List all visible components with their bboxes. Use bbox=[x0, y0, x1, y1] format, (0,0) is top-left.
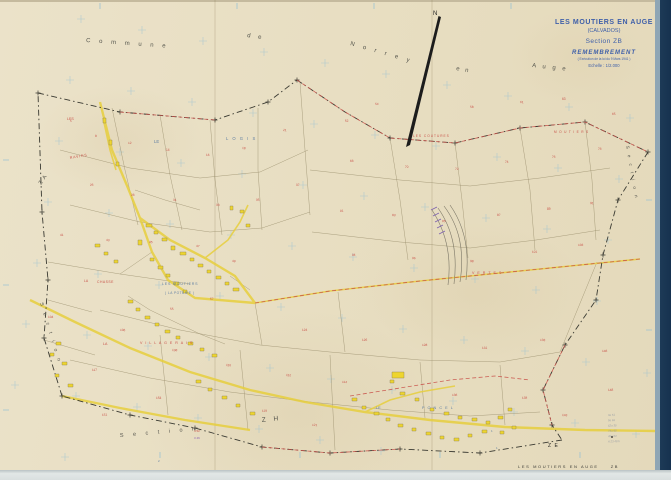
parcel-number: 31 bbox=[173, 198, 177, 202]
parcel-number: 58 bbox=[470, 105, 474, 109]
parcel-number: 35 bbox=[256, 198, 260, 202]
map-label: ( LA POTERIE ) bbox=[165, 291, 195, 295]
parcel-number: 138 bbox=[522, 396, 528, 400]
parcel-number: 112 bbox=[286, 373, 292, 377]
map-label: 2 bbox=[158, 459, 160, 463]
parcel-number: 43 bbox=[106, 238, 110, 242]
parcel-number: 68 bbox=[350, 159, 354, 163]
title-commune: LES MOUTIERS EN AUGE bbox=[545, 19, 663, 26]
title-departement: (CALVADOS) bbox=[545, 29, 663, 35]
parcel-number: 151 bbox=[102, 413, 108, 417]
map-label: C o m m u n e bbox=[86, 38, 169, 50]
title-remembrement: REMEMBREMENT bbox=[545, 50, 663, 56]
parcel-number: 21 bbox=[283, 128, 287, 132]
survey-dot bbox=[611, 436, 613, 438]
title-section: Section ZB bbox=[545, 39, 663, 46]
north-arrow bbox=[406, 16, 441, 147]
parcel-number: 47 bbox=[196, 244, 200, 248]
sheet-footer: LES MOUTIERS EN AUGEZB bbox=[518, 464, 631, 469]
map-label: LES MOUTIERS bbox=[162, 282, 198, 286]
parcel-number: 37 bbox=[296, 183, 300, 187]
footer-section: ZB bbox=[611, 464, 619, 469]
map-label: RAVINS bbox=[69, 153, 87, 160]
parcel-number: 128 bbox=[422, 343, 428, 347]
parcel-number: 52 bbox=[345, 119, 349, 123]
parcel-number: 74 bbox=[505, 160, 509, 164]
map-label: LE bbox=[376, 406, 381, 410]
parcel-number: 54 bbox=[375, 102, 379, 106]
parcel-number: 26 bbox=[90, 183, 94, 187]
parcel-number: 96 bbox=[412, 256, 416, 260]
map-label: Z A bbox=[38, 173, 49, 186]
map-label: e n bbox=[456, 66, 471, 74]
parcel-number: 33 bbox=[216, 203, 220, 207]
parcel-number: 124 bbox=[302, 328, 308, 332]
parcel-number: 45 bbox=[149, 240, 153, 244]
parcel-number: 131 bbox=[482, 346, 488, 350]
map-label: 9a 65 bbox=[608, 418, 616, 422]
parcel-number: 133 bbox=[540, 338, 546, 342]
parcel-number: 65 bbox=[612, 112, 616, 116]
parcel-number: 119 bbox=[262, 409, 268, 413]
parcel-number: 63 bbox=[562, 97, 566, 101]
parcel-number: 87 bbox=[497, 213, 501, 217]
parcel-number: 70 bbox=[405, 165, 409, 169]
parcel-number: 57 bbox=[210, 297, 214, 301]
parcel-number: 55 bbox=[170, 307, 174, 311]
parcel-number: 114 bbox=[342, 380, 347, 384]
map-label: L O G I S bbox=[226, 136, 257, 141]
parcel-number: 14 bbox=[166, 148, 170, 152]
place-labels: NC o m m u n ed eN o r r e ye nA u g eS … bbox=[38, 11, 640, 463]
parcel-number: 89 bbox=[547, 207, 551, 211]
parcel-number: 110 bbox=[226, 363, 232, 367]
map-sheet-scan: 5812141618212628313335374143454749525458… bbox=[0, 0, 671, 480]
map-label: P O N C E L bbox=[422, 406, 454, 410]
parcel-number: 41 bbox=[60, 233, 64, 237]
cadastral-map-canvas: 5812141618212628313335374143454749525458… bbox=[0, 0, 671, 480]
map-label: A 23 48 b bbox=[607, 439, 620, 443]
map-label: 3a 51 bbox=[608, 413, 616, 417]
parcel-number: 81 bbox=[340, 209, 344, 213]
map-label: LE bbox=[154, 139, 159, 144]
map-label: LES COUTURES bbox=[413, 134, 450, 138]
map-label: 74a 90 bbox=[608, 429, 617, 433]
map-label: V I L L A G E R A I S bbox=[140, 341, 193, 345]
parcel-number: 146 bbox=[602, 349, 608, 353]
parcel-numbers: 5812141618212628313335374143454749525458… bbox=[48, 97, 616, 427]
map-label: CHASSE bbox=[97, 280, 114, 284]
footer-commune: LES MOUTIERS EN AUGE bbox=[518, 464, 599, 469]
parcel-number: 76 bbox=[552, 155, 556, 159]
map-label: d e bbox=[247, 33, 265, 41]
map-label: LA bbox=[103, 342, 108, 346]
parcel-number: 126 bbox=[362, 338, 368, 342]
title-loi: ( Exécution de la loi du 9 Mars 1941 ) bbox=[545, 58, 663, 61]
parcel-number: 8 bbox=[95, 134, 97, 138]
parcel-number: 148 bbox=[608, 388, 614, 392]
margin-annotations: 3a 519a 6562a 3574a 9045a 04A 23 48 b bbox=[607, 413, 620, 444]
parcel-number: 121 bbox=[312, 423, 318, 427]
map-label: N o r r e y bbox=[349, 41, 413, 65]
map-label: 3 46 bbox=[194, 436, 200, 440]
parcel-number: 153 bbox=[156, 396, 162, 400]
parcel-number: 117 bbox=[92, 368, 97, 372]
map-label: 62a 35 bbox=[608, 423, 617, 427]
commune-boundary bbox=[38, 80, 648, 453]
parcel-number: 72 bbox=[455, 167, 459, 171]
parcel-number: 136 bbox=[452, 393, 458, 397]
map-label: S e c t i o n bbox=[120, 426, 200, 439]
parcel-number: 106 bbox=[120, 328, 126, 332]
map-label: LES bbox=[67, 117, 74, 121]
map-label: S e c t i o n bbox=[625, 145, 639, 200]
map-label: LA bbox=[84, 279, 89, 283]
parcel-number: 143 bbox=[562, 413, 568, 417]
parcel-number: 83 bbox=[392, 213, 396, 217]
map-label: Z H bbox=[261, 415, 281, 424]
parcel-number: 85 bbox=[442, 219, 446, 223]
parcel-number: 91 bbox=[590, 201, 594, 205]
map-label: N bbox=[433, 11, 437, 17]
title-echelle: Echelle : 1/2.000 bbox=[545, 64, 663, 68]
title-block: LES MOUTIERS EN AUGE (CALVADOS) Section … bbox=[545, 19, 663, 68]
parcel-number: 78 bbox=[598, 147, 602, 151]
parcel-number: 108 bbox=[172, 348, 178, 352]
map-label: M O U T I E R S bbox=[554, 130, 589, 134]
map-label: V E R T E S bbox=[472, 271, 502, 275]
parcel-number: 101 bbox=[532, 250, 538, 254]
map-label: Z E bbox=[548, 443, 559, 449]
parcel-number: 61 bbox=[520, 100, 524, 104]
parcel-number: 18 bbox=[242, 146, 246, 150]
parcel-number: 98 bbox=[470, 259, 474, 263]
parcel-number: 28 bbox=[131, 193, 135, 197]
parcel-number: 94 bbox=[352, 253, 356, 257]
map-label: 1 bbox=[491, 429, 493, 433]
map-label: 1 bbox=[496, 446, 498, 450]
parcel-number: 103 bbox=[578, 243, 584, 247]
map-label: 4 52 bbox=[194, 429, 200, 433]
parcel-number: 12 bbox=[128, 141, 132, 145]
parcel-number: 16 bbox=[206, 153, 210, 157]
parcel-number: 49 bbox=[232, 259, 236, 263]
